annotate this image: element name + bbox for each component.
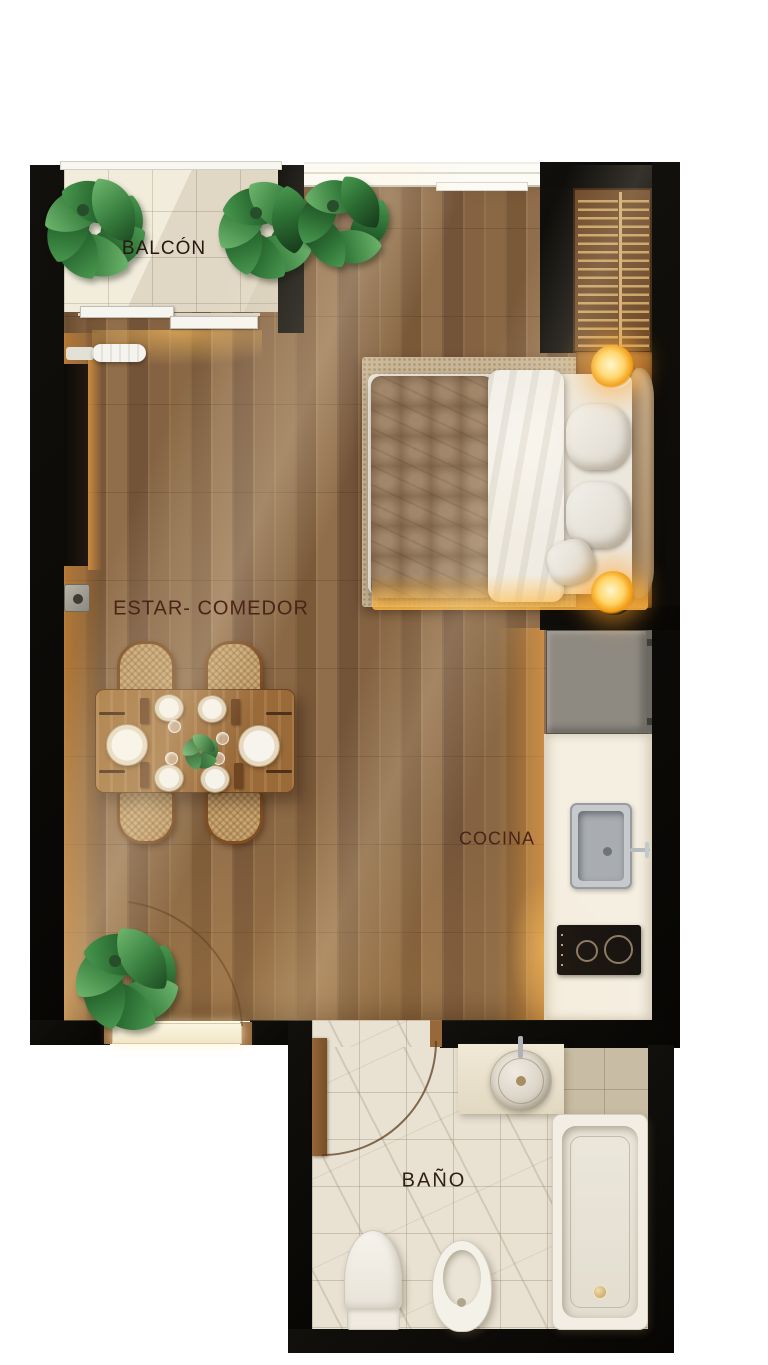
cutlery-3 (266, 712, 292, 715)
room-label-estar-comedor: ESTAR- COMEDOR (113, 598, 309, 621)
wall-bathroom-bottom (288, 1329, 674, 1353)
cooktop-controls (561, 932, 563, 966)
placemat-1 (140, 698, 149, 724)
floor-plan: BALCÓN ESTAR- COMEDOR COCINA BAÑO (0, 0, 768, 1365)
sliding-door-leaf-right (170, 316, 258, 329)
bathtub-inner-line (570, 1136, 630, 1308)
room-label-bano: BAÑO (402, 1170, 467, 1193)
kitchen-sink-basin (578, 811, 624, 881)
wall-right (652, 162, 680, 1048)
dining-chair-top-right (205, 641, 263, 695)
plant-leaf (340, 176, 380, 227)
dining-chair-bottom-left (117, 790, 175, 844)
kitchen-sink-drain (603, 847, 612, 856)
cooktop-burner-small (576, 940, 598, 962)
tv-backlight (88, 358, 102, 570)
plant-leaf (116, 926, 167, 991)
living-room-plant (57, 903, 172, 1018)
plant-stem (77, 204, 89, 216)
table-centerpiece-plant (174, 723, 218, 767)
plate-right (238, 725, 280, 767)
plant-stem (250, 207, 262, 219)
cutlery-2 (99, 770, 125, 773)
dining-chair-bottom-right (205, 790, 263, 844)
wall-switch (64, 584, 90, 612)
wall-wardrobe-left (540, 188, 573, 353)
bedside-lamp-top (591, 345, 635, 389)
wall-bathroom-left (288, 1020, 312, 1353)
wall-bottom-left (30, 1020, 110, 1045)
stove-area-glow (486, 878, 544, 1020)
wardrobe-center-rail (619, 192, 622, 349)
room-label-cocina: COCINA (459, 829, 535, 850)
dining-chair-top-left (117, 641, 175, 695)
placemat-2 (231, 699, 240, 725)
wall-bathroom-right (648, 1045, 674, 1353)
bathroom-sink-drain (516, 1076, 526, 1086)
bowl-bottom-left (154, 764, 184, 792)
wall-switch-knob (73, 594, 83, 604)
sliding-door-leaf-left (80, 306, 174, 318)
dining-table (95, 689, 295, 793)
placemat-4 (234, 763, 243, 789)
bathroom-sink-faucet (518, 1036, 523, 1058)
bowl-top-left (154, 694, 184, 722)
cooktop-burner-large (604, 935, 633, 964)
plant-leaf (87, 178, 140, 243)
bed-pillow-1 (566, 404, 630, 470)
hand-towel (92, 344, 146, 362)
toilet-tank (347, 1308, 400, 1330)
wardrobe-slats-left (578, 195, 618, 347)
tv-panel (64, 364, 88, 566)
kitchen-faucet-handle (645, 842, 649, 858)
bathroom-doorway-floor (312, 1020, 432, 1047)
cabinet-hinge-top (647, 639, 652, 646)
bowl-bottom-right (200, 765, 230, 793)
bed-comforter (371, 376, 493, 598)
cutlery-1 (99, 712, 125, 715)
plate-left (106, 724, 148, 766)
bedside-lamp-bottom (591, 571, 635, 615)
plant-stem (109, 955, 121, 967)
slatted-wardrobe (573, 188, 652, 353)
wardrobe-slats-right (622, 199, 649, 347)
placemat-3 (140, 762, 149, 788)
window-plant (287, 160, 379, 252)
bedroom-window-sill (436, 182, 528, 191)
bath-door-jamb (430, 1020, 442, 1047)
bowl-top-right (197, 695, 227, 723)
room-label-balcon: BALCÓN (122, 238, 206, 260)
towel-holder (66, 347, 94, 360)
bathroom-door-leaf (312, 1038, 327, 1156)
cutlery-4 (266, 770, 292, 773)
kitchen-tall-cabinet (546, 630, 652, 734)
cabinet-hinge-bottom (647, 718, 652, 725)
kitchen-sink (570, 803, 632, 889)
bathtub-faucet (594, 1286, 606, 1298)
bidet-faucet (457, 1298, 466, 1307)
plant-stem (327, 200, 339, 212)
